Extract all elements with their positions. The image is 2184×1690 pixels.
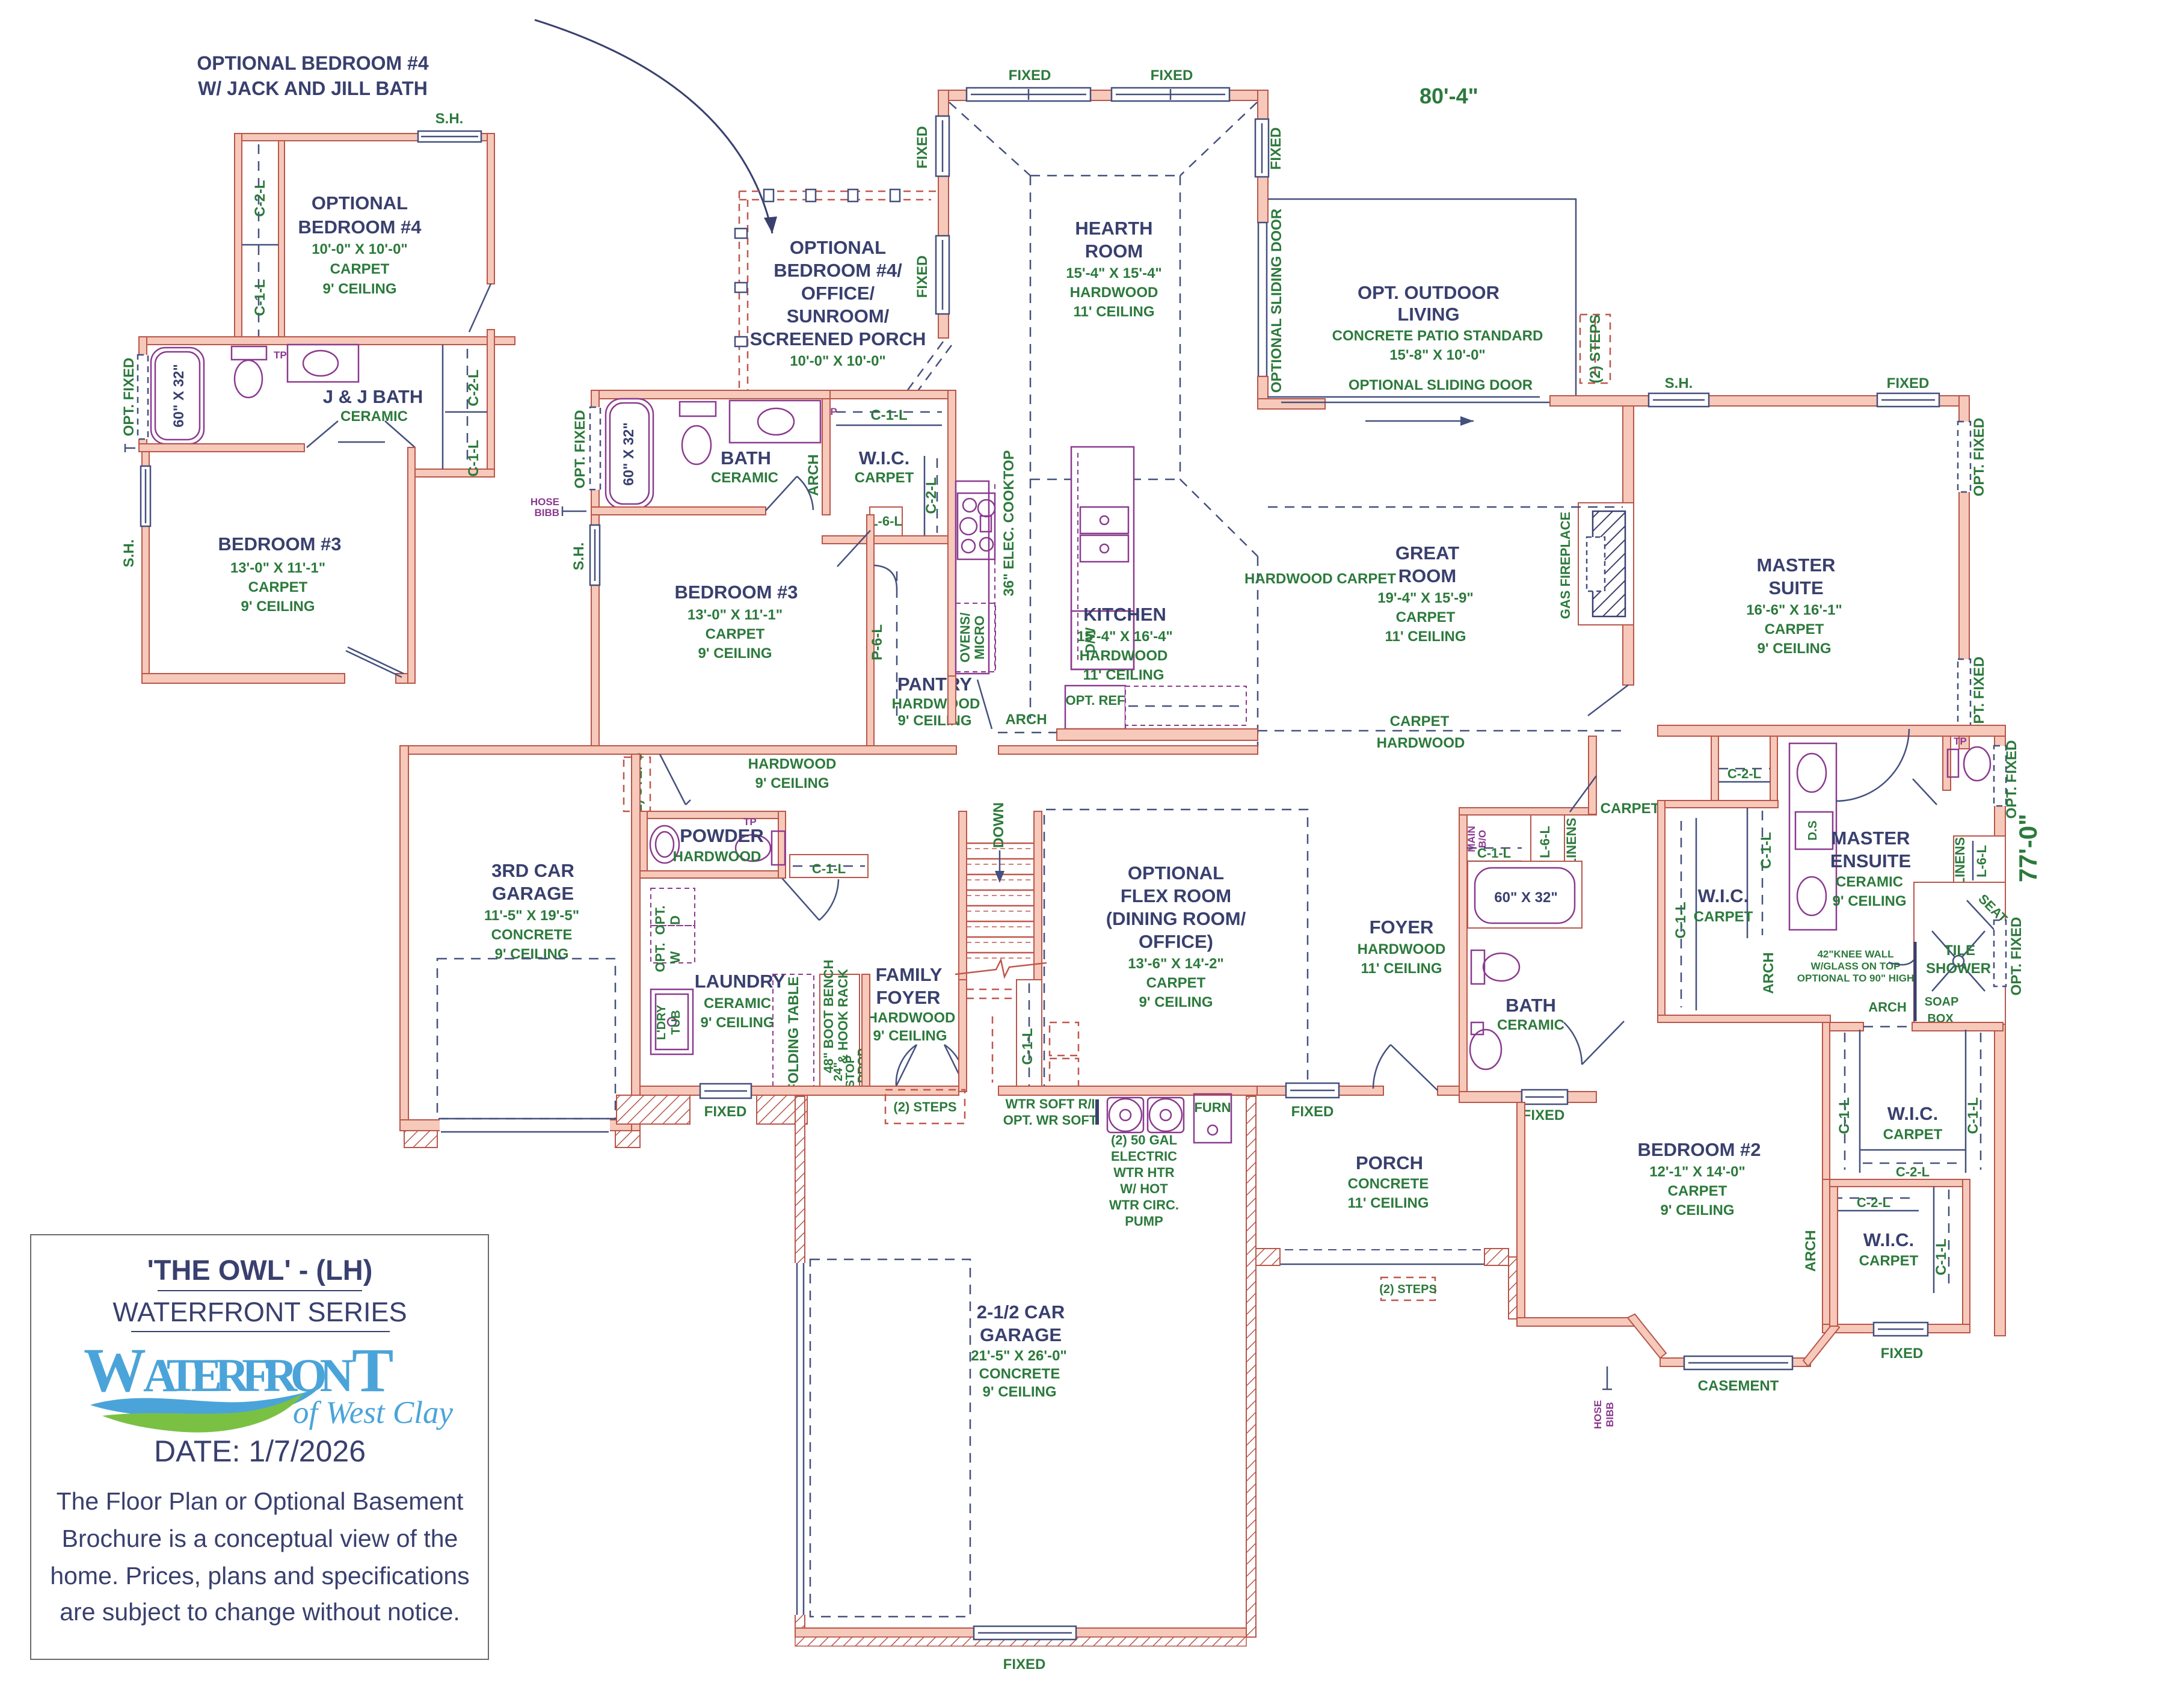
svg-text:60" X 32": 60" X 32" xyxy=(621,422,637,486)
svg-text:MASTER: MASTER xyxy=(1757,555,1836,576)
svg-text:CARPET: CARPET xyxy=(1694,909,1753,925)
svg-text:GAS FIREPLACE: GAS FIREPLACE xyxy=(1558,512,1573,619)
svg-text:BEDROOM #3: BEDROOM #3 xyxy=(675,582,798,603)
svg-text:FIXED: FIXED xyxy=(1887,375,1930,392)
svg-text:S.H.: S.H. xyxy=(121,539,137,568)
svg-text:C-1-L: C-1-L xyxy=(1020,1028,1036,1065)
svg-text:C-2-L: C-2-L xyxy=(1896,1164,1930,1179)
svg-text:S.H.: S.H. xyxy=(571,542,587,571)
svg-text:C-2-L: C-2-L xyxy=(1857,1195,1890,1210)
svg-text:11'-5" X 19'-5": 11'-5" X 19'-5" xyxy=(484,908,579,924)
svg-text:C-1-L: C-1-L xyxy=(1758,832,1774,868)
svg-text:OPT. FIXED: OPT. FIXED xyxy=(572,410,588,489)
svg-text:WTR CIRC.: WTR CIRC. xyxy=(1109,1197,1179,1212)
svg-text:W: W xyxy=(84,1336,146,1405)
svg-text:P-6-L: P-6-L xyxy=(869,624,885,660)
svg-text:OPT.: OPT. xyxy=(653,943,668,973)
svg-text:FIXED: FIXED xyxy=(1009,67,1051,84)
svg-text:9' CEILING: 9' CEILING xyxy=(322,281,396,297)
svg-text:J & J BATH: J & J BATH xyxy=(323,386,423,407)
svg-text:C-1-L: C-1-L xyxy=(252,279,268,316)
svg-text:(2) STEPS: (2) STEPS xyxy=(1587,315,1604,384)
svg-text:C-2-L: C-2-L xyxy=(1727,766,1761,781)
svg-text:CONCRETE: CONCRETE xyxy=(491,927,573,943)
svg-text:KITCHEN: KITCHEN xyxy=(1083,604,1166,625)
svg-text:BATH: BATH xyxy=(1506,995,1556,1016)
svg-text:The Floor Plan or Optional Bas: The Floor Plan or Optional Basement xyxy=(57,1487,464,1515)
svg-text:24": 24" xyxy=(832,1062,845,1081)
svg-text:9' CEILING: 9' CEILING xyxy=(755,775,829,791)
svg-text:TP: TP xyxy=(1954,736,1967,747)
svg-text:CASEMENT: CASEMENT xyxy=(1698,1378,1779,1394)
svg-text:CERAMIC: CERAMIC xyxy=(704,995,771,1012)
svg-text:MASTER: MASTER xyxy=(1832,828,1910,849)
svg-text:11' CEILING: 11' CEILING xyxy=(1347,1195,1429,1211)
svg-text:CERAMIC: CERAMIC xyxy=(711,470,778,486)
svg-text:13'-0" X 11'-1": 13'-0" X 11'-1" xyxy=(687,607,783,623)
svg-text:21'-5" X 26'-0": 21'-5" X 26'-0" xyxy=(971,1348,1067,1364)
svg-text:CARPET: CARPET xyxy=(1668,1183,1727,1199)
svg-text:(2) STEPS: (2) STEPS xyxy=(1379,1283,1437,1296)
svg-text:W/ HOT: W/ HOT xyxy=(1120,1181,1168,1196)
svg-text:C-1-L: C-1-L xyxy=(1933,1238,1949,1275)
svg-text:HARDWOOD CARPET: HARDWOOD CARPET xyxy=(1244,571,1396,587)
svg-text:CARPET: CARPET xyxy=(1765,621,1824,638)
svg-text:W.I.C.: W.I.C. xyxy=(1863,1229,1914,1250)
svg-text:FOYER: FOYER xyxy=(876,987,941,1008)
svg-text:WTR HTR: WTR HTR xyxy=(1113,1165,1175,1180)
svg-text:9' CEILING: 9' CEILING xyxy=(1757,641,1831,657)
svg-text:W.I.C.: W.I.C. xyxy=(1698,885,1749,906)
svg-text:OPT. FIXED: OPT. FIXED xyxy=(1971,418,1987,497)
svg-text:C-2-L: C-2-L xyxy=(252,180,268,217)
svg-text:CONCRETE: CONCRETE xyxy=(1348,1176,1429,1192)
svg-text:BEDROOM #4/: BEDROOM #4/ xyxy=(774,260,902,281)
svg-text:WTR SOFT R/I: WTR SOFT R/I xyxy=(1005,1096,1095,1111)
svg-text:15'-8" X 10'-0": 15'-8" X 10'-0" xyxy=(1389,347,1486,363)
svg-text:BIBB: BIBB xyxy=(534,507,559,518)
svg-text:SOAP: SOAP xyxy=(1925,995,1959,1009)
svg-text:C-1-L: C-1-L xyxy=(1836,1097,1853,1134)
svg-text:FLEX ROOM: FLEX ROOM xyxy=(1121,885,1231,906)
svg-text:11' CEILING: 11' CEILING xyxy=(1385,628,1466,645)
svg-text:CERAMIC: CERAMIC xyxy=(1497,1017,1564,1033)
svg-text:FIXED: FIXED xyxy=(914,256,931,298)
svg-text:HOSE: HOSE xyxy=(531,496,559,508)
svg-text:ARCH: ARCH xyxy=(1868,1000,1907,1015)
svg-text:C-2-L: C-2-L xyxy=(466,369,482,406)
svg-text:9' CEILING: 9' CEILING xyxy=(897,713,971,729)
svg-text:ATERFRON: ATERFRON xyxy=(143,1349,354,1401)
svg-text:HARDWOOD: HARDWOOD xyxy=(1377,735,1465,751)
svg-text:LIVING: LIVING xyxy=(1397,304,1459,325)
svg-text:OPT. FIXED: OPT. FIXED xyxy=(2008,917,2025,996)
svg-text:CARPET: CARPET xyxy=(1883,1126,1943,1143)
svg-text:MAIN: MAIN xyxy=(1466,826,1477,852)
svg-text:OPTIONAL SLIDING DOOR: OPTIONAL SLIDING DOOR xyxy=(1269,209,1285,393)
svg-text:& HOOK RACK: & HOOK RACK xyxy=(835,969,851,1064)
svg-text:C-1-L: C-1-L xyxy=(466,440,482,476)
svg-text:(2) STEPS: (2) STEPS xyxy=(893,1099,956,1114)
svg-text:MICRO: MICRO xyxy=(972,615,987,659)
svg-text:OPT. REF: OPT. REF xyxy=(1065,693,1125,708)
svg-text:L-6-L: L-6-L xyxy=(870,514,902,529)
svg-text:SUITE: SUITE xyxy=(1768,577,1823,598)
svg-text:9' CEILING: 9' CEILING xyxy=(982,1384,1056,1400)
svg-text:home. Prices, plans and specif: home. Prices, plans and specifications xyxy=(50,1562,469,1590)
svg-text:FAMILY: FAMILY xyxy=(876,964,943,985)
svg-text:W.I.C.: W.I.C. xyxy=(1887,1103,1938,1124)
svg-text:ROOM: ROOM xyxy=(1398,565,1456,586)
svg-text:L-6-L: L-6-L xyxy=(1974,845,1989,877)
svg-text:BEDROOM #3: BEDROOM #3 xyxy=(218,533,342,555)
svg-text:C-1-L: C-1-L xyxy=(812,861,846,876)
svg-text:FOLDING TABLE: FOLDING TABLE xyxy=(786,977,802,1093)
svg-text:ARCH: ARCH xyxy=(1761,952,1777,994)
svg-text:CONCRETE: CONCRETE xyxy=(979,1366,1060,1382)
svg-text:ELECTRIC: ELECTRIC xyxy=(1111,1149,1177,1164)
svg-text:OFFICE): OFFICE) xyxy=(1139,931,1213,952)
svg-text:SHOWER: SHOWER xyxy=(1926,960,1991,977)
svg-text:ENSUITE: ENSUITE xyxy=(1830,850,1911,871)
svg-text:HARDWOOD: HARDWOOD xyxy=(1080,648,1168,664)
svg-text:L-6-L: L-6-L xyxy=(1537,826,1552,858)
svg-text:48" BOOT BENCH: 48" BOOT BENCH xyxy=(821,960,836,1074)
svg-text:60" X 32": 60" X 32" xyxy=(1494,890,1558,906)
svg-text:POWDER: POWDER xyxy=(680,825,764,846)
svg-text:S.H.: S.H. xyxy=(435,111,464,127)
svg-text:9' CEILING: 9' CEILING xyxy=(241,598,315,615)
svg-text:9' CEILING: 9' CEILING xyxy=(1832,893,1906,909)
svg-text:OPTIONAL SLIDING DOOR: OPTIONAL SLIDING DOOR xyxy=(1349,377,1533,393)
svg-text:DOWN: DOWN xyxy=(991,802,1007,848)
svg-text:C-2-L: C-2-L xyxy=(923,477,940,514)
svg-text:FURN: FURN xyxy=(1194,1100,1231,1115)
svg-text:TP: TP xyxy=(274,349,287,361)
svg-text:OPT. FIXED: OPT. FIXED xyxy=(121,358,137,437)
svg-text:HARDWOOD: HARDWOOD xyxy=(867,1010,956,1026)
svg-text:OPTIONAL: OPTIONAL xyxy=(1128,862,1224,883)
svg-text:CARPET: CARPET xyxy=(1146,975,1206,991)
svg-text:CARPET: CARPET xyxy=(1601,800,1660,817)
svg-text:OPT. WR SOFT: OPT. WR SOFT xyxy=(1003,1113,1098,1128)
svg-text:WATERFRONT SERIES: WATERFRONT SERIES xyxy=(112,1297,407,1327)
svg-text:FIXED: FIXED xyxy=(1003,1656,1046,1673)
svg-text:L'DRY: L'DRY xyxy=(655,1004,668,1040)
svg-text:C-1-L: C-1-L xyxy=(1673,902,1689,938)
svg-text:HARDWOOD: HARDWOOD xyxy=(1358,941,1446,957)
svg-text:OVENS/: OVENS/ xyxy=(958,612,973,662)
svg-text:13'-6" X 14'-2": 13'-6" X 14'-2" xyxy=(1128,956,1224,972)
svg-text:OPT. OUTDOOR: OPT. OUTDOOR xyxy=(1358,282,1500,303)
svg-text:9' CEILING: 9' CEILING xyxy=(698,645,772,662)
svg-text:OPT. FIXED: OPT. FIXED xyxy=(1971,657,1987,736)
svg-text:60" X 32": 60" X 32" xyxy=(171,364,187,428)
svg-text:HARDWOOD: HARDWOOD xyxy=(748,756,837,772)
svg-text:HARDWOOD: HARDWOOD xyxy=(673,849,761,865)
svg-text:CARPET: CARPET xyxy=(706,626,765,642)
svg-text:BEDROOM #2: BEDROOM #2 xyxy=(1638,1139,1761,1160)
svg-text:ROOM: ROOM xyxy=(1085,241,1143,262)
svg-text:HARDWOOD: HARDWOOD xyxy=(1070,284,1158,301)
svg-text:SUNROOM/: SUNROOM/ xyxy=(787,306,890,327)
svg-text:PANTRY: PANTRY xyxy=(897,674,972,695)
svg-text:LINENS: LINENS xyxy=(1952,837,1967,886)
svg-text:FIXED: FIXED xyxy=(1881,1345,1924,1362)
svg-text:15'-4" X 16'-4": 15'-4" X 16'-4" xyxy=(1077,628,1173,645)
svg-text:OFFICE/: OFFICE/ xyxy=(801,283,875,304)
svg-text:FIXED: FIXED xyxy=(1151,67,1193,84)
svg-text:9' CEILING: 9' CEILING xyxy=(494,946,568,962)
svg-text:FIXED: FIXED xyxy=(1268,128,1284,170)
svg-text:11' CEILING: 11' CEILING xyxy=(1083,667,1164,683)
svg-text:C-1-L: C-1-L xyxy=(1477,846,1511,861)
svg-text:TILE: TILE xyxy=(1944,942,1975,959)
svg-text:13'-0" X 11'-1": 13'-0" X 11'-1" xyxy=(230,560,325,576)
svg-text:HEARTH: HEARTH xyxy=(1075,218,1152,239)
svg-text:W.I.C.: W.I.C. xyxy=(859,447,909,469)
svg-text:OPTIONAL TO 90" HIGH: OPTIONAL TO 90" HIGH xyxy=(1797,973,1914,984)
svg-text:BEDROOM #4: BEDROOM #4 xyxy=(298,217,422,238)
svg-text:OPTIONAL BEDROOM #4: OPTIONAL BEDROOM #4 xyxy=(197,52,428,74)
svg-text:FOYER: FOYER xyxy=(1370,917,1434,938)
svg-text:OPT. FIXED: OPT. FIXED xyxy=(2004,740,2020,819)
svg-text:D.S: D.S xyxy=(1806,820,1819,840)
svg-text:(DINING ROOM/: (DINING ROOM/ xyxy=(1106,908,1246,929)
svg-text:PORCH: PORCH xyxy=(1356,1152,1423,1173)
svg-text:CARPET: CARPET xyxy=(1396,609,1456,625)
svg-text:CARPET: CARPET xyxy=(330,261,390,277)
svg-text:80'-4": 80'-4" xyxy=(1420,84,1478,108)
svg-text:10'-0" X 10'-0": 10'-0" X 10'-0" xyxy=(312,241,408,257)
svg-text:CARPET: CARPET xyxy=(1390,713,1450,730)
svg-text:S.H.: S.H. xyxy=(1665,375,1693,392)
svg-text:HOSE: HOSE xyxy=(1592,1400,1604,1429)
svg-text:3RD CAR: 3RD CAR xyxy=(491,860,574,881)
svg-text:10'-0" X 10'-0": 10'-0" X 10'-0" xyxy=(790,353,886,369)
svg-text:CONCRETE PATIO STANDARD: CONCRETE PATIO STANDARD xyxy=(1332,328,1543,344)
svg-text:STOP: STOP xyxy=(844,1055,857,1088)
svg-text:42"KNEE WALL: 42"KNEE WALL xyxy=(1817,948,1893,960)
svg-text:OPTIONAL: OPTIONAL xyxy=(790,237,886,258)
svg-text:GARAGE: GARAGE xyxy=(980,1324,1062,1345)
svg-text:9' CEILING: 9' CEILING xyxy=(1660,1202,1734,1218)
svg-text:OPT.: OPT. xyxy=(653,906,668,935)
svg-text:W: W xyxy=(668,951,683,963)
svg-text:36" ELEC. COOKTOP: 36" ELEC. COOKTOP xyxy=(1001,450,1017,597)
svg-text:9' CEILING: 9' CEILING xyxy=(1139,994,1213,1010)
svg-text:D: D xyxy=(668,915,683,925)
svg-text:16'-6" X 16'-1": 16'-6" X 16'-1" xyxy=(1746,602,1842,618)
svg-text:11' CEILING: 11' CEILING xyxy=(1361,960,1442,977)
svg-text:W/ JACK AND JILL BATH: W/ JACK AND JILL BATH xyxy=(198,78,428,99)
svg-text:LINENS: LINENS xyxy=(1564,818,1579,867)
svg-text:CERAMIC: CERAMIC xyxy=(1836,874,1903,890)
svg-text:12'-1" X 14'-0": 12'-1" X 14'-0" xyxy=(1649,1164,1746,1180)
svg-text:TUB: TUB xyxy=(669,1010,683,1034)
svg-text:of West Clay: of West Clay xyxy=(293,1395,453,1430)
svg-text:FIXED: FIXED xyxy=(1522,1107,1565,1123)
svg-text:15'-4" X 15'-4": 15'-4" X 15'-4" xyxy=(1066,265,1162,281)
svg-text:9' CEILING: 9' CEILING xyxy=(700,1015,774,1031)
svg-text:GREAT: GREAT xyxy=(1395,542,1459,564)
svg-text:9' CEILING: 9' CEILING xyxy=(873,1028,947,1044)
svg-text:T: T xyxy=(352,1336,393,1405)
svg-text:DATE: 1/7/2026: DATE: 1/7/2026 xyxy=(154,1434,366,1468)
svg-text:BATH: BATH xyxy=(721,447,771,469)
svg-text:are subject to change without: are subject to change without notice. xyxy=(60,1598,460,1626)
svg-text:FIXED: FIXED xyxy=(914,126,931,169)
svg-text:ARCH: ARCH xyxy=(1803,1230,1819,1271)
svg-text:C-1-L: C-1-L xyxy=(870,407,907,423)
svg-text:11' CEILING: 11' CEILING xyxy=(1073,304,1154,320)
svg-text:GARAGE: GARAGE xyxy=(492,883,574,904)
svg-text:'THE OWL' - (LH): 'THE OWL' - (LH) xyxy=(147,1254,373,1286)
svg-text:Brochure is a conceptual view: Brochure is a conceptual view of the xyxy=(62,1525,458,1552)
svg-text:CARPET: CARPET xyxy=(855,470,914,486)
svg-text:ARCH: ARCH xyxy=(1005,711,1047,728)
svg-text:CARPET: CARPET xyxy=(1859,1253,1919,1269)
svg-text:2-1/2 CAR: 2-1/2 CAR xyxy=(977,1301,1065,1323)
svg-text:BIBB: BIBB xyxy=(1604,1402,1616,1427)
svg-text:SCREENED PORCH: SCREENED PORCH xyxy=(750,328,926,349)
svg-text:FIXED: FIXED xyxy=(704,1104,747,1120)
svg-text:W/GLASS ON TOP: W/GLASS ON TOP xyxy=(1811,960,1901,972)
svg-text:CERAMIC: CERAMIC xyxy=(340,408,408,425)
svg-text:(2) 50 GAL: (2) 50 GAL xyxy=(1111,1132,1177,1148)
svg-text:77'-0": 77'-0" xyxy=(2014,814,2042,882)
svg-text:PUMP: PUMP xyxy=(1125,1214,1163,1229)
svg-text:19'-4" X 15'-9": 19'-4" X 15'-9" xyxy=(1377,590,1474,606)
svg-text:LAUNDRY: LAUNDRY xyxy=(695,971,786,992)
svg-text:OPTIONAL: OPTIONAL xyxy=(312,192,408,214)
svg-text:CARPET: CARPET xyxy=(248,579,308,595)
svg-text:C-1-L: C-1-L xyxy=(1965,1097,1981,1134)
svg-text:HARDWOOD: HARDWOOD xyxy=(892,696,980,712)
svg-text:FIXED: FIXED xyxy=(1291,1104,1334,1120)
